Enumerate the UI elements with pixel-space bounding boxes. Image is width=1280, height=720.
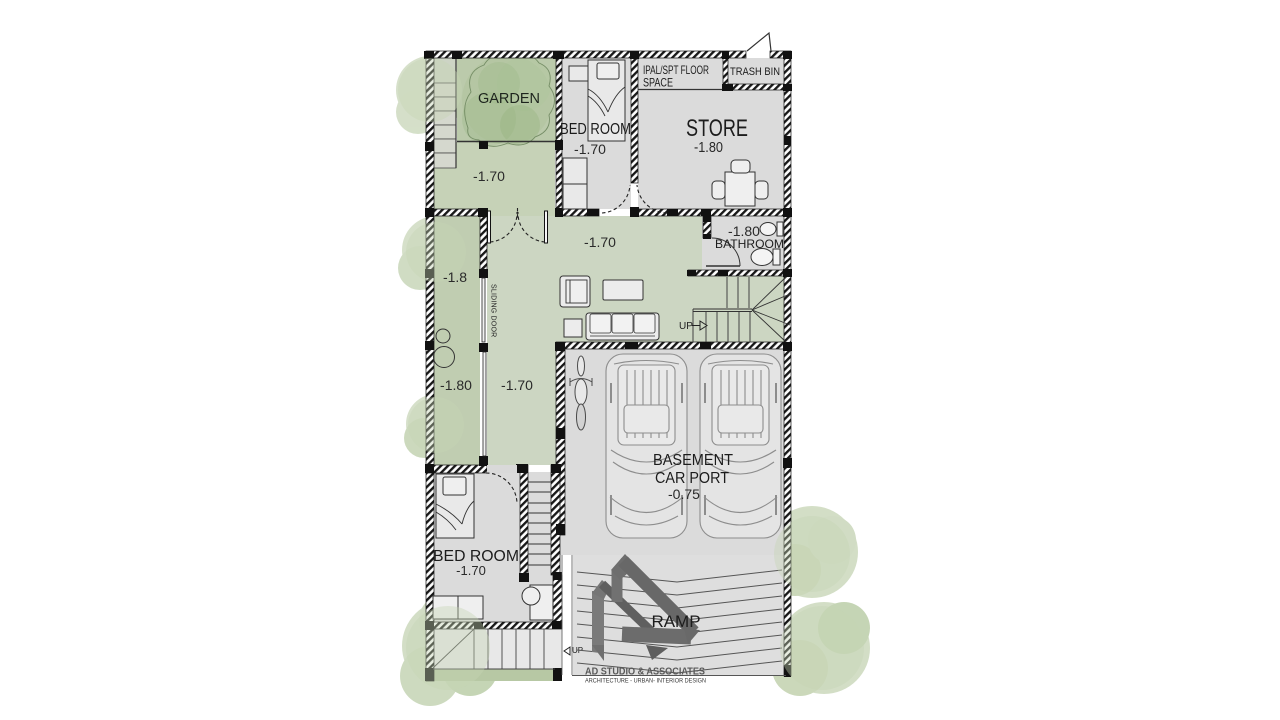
svg-text:RAMP: RAMP bbox=[651, 612, 700, 631]
svg-text:UP: UP bbox=[679, 321, 693, 332]
svg-text:-1.70: -1.70 bbox=[584, 234, 616, 250]
svg-text:CAR PORT: CAR PORT bbox=[655, 470, 729, 487]
svg-text:AD STUDIO & ASSOCIATES: AD STUDIO & ASSOCIATES bbox=[585, 666, 705, 678]
svg-text:BATHROOM: BATHROOM bbox=[715, 237, 784, 251]
svg-text:BASEMENT: BASEMENT bbox=[653, 452, 733, 469]
svg-text:BED ROOM: BED ROOM bbox=[560, 121, 631, 138]
svg-text:-1.80: -1.80 bbox=[440, 377, 472, 393]
svg-text:ARCHITECTURE - URBAN- INTERIOR: ARCHITECTURE - URBAN- INTERIOR DESIGN bbox=[585, 678, 706, 685]
svg-text:-1.80: -1.80 bbox=[694, 140, 723, 156]
svg-text:STORE: STORE bbox=[686, 115, 748, 142]
svg-text:-1.70: -1.70 bbox=[473, 168, 505, 184]
svg-text:SLIDING DOOR: SLIDING DOOR bbox=[490, 284, 497, 337]
svg-text:-1.70: -1.70 bbox=[574, 141, 606, 157]
svg-text:-1.70: -1.70 bbox=[456, 563, 486, 578]
svg-text:TRASH BIN: TRASH BIN bbox=[730, 66, 780, 78]
svg-text:-0.75: -0.75 bbox=[668, 487, 700, 502]
svg-text:SPACE: SPACE bbox=[643, 76, 673, 90]
svg-text:-1.70: -1.70 bbox=[501, 377, 533, 393]
svg-text:-1.8: -1.8 bbox=[443, 269, 467, 285]
svg-text:GARDEN: GARDEN bbox=[478, 90, 540, 107]
